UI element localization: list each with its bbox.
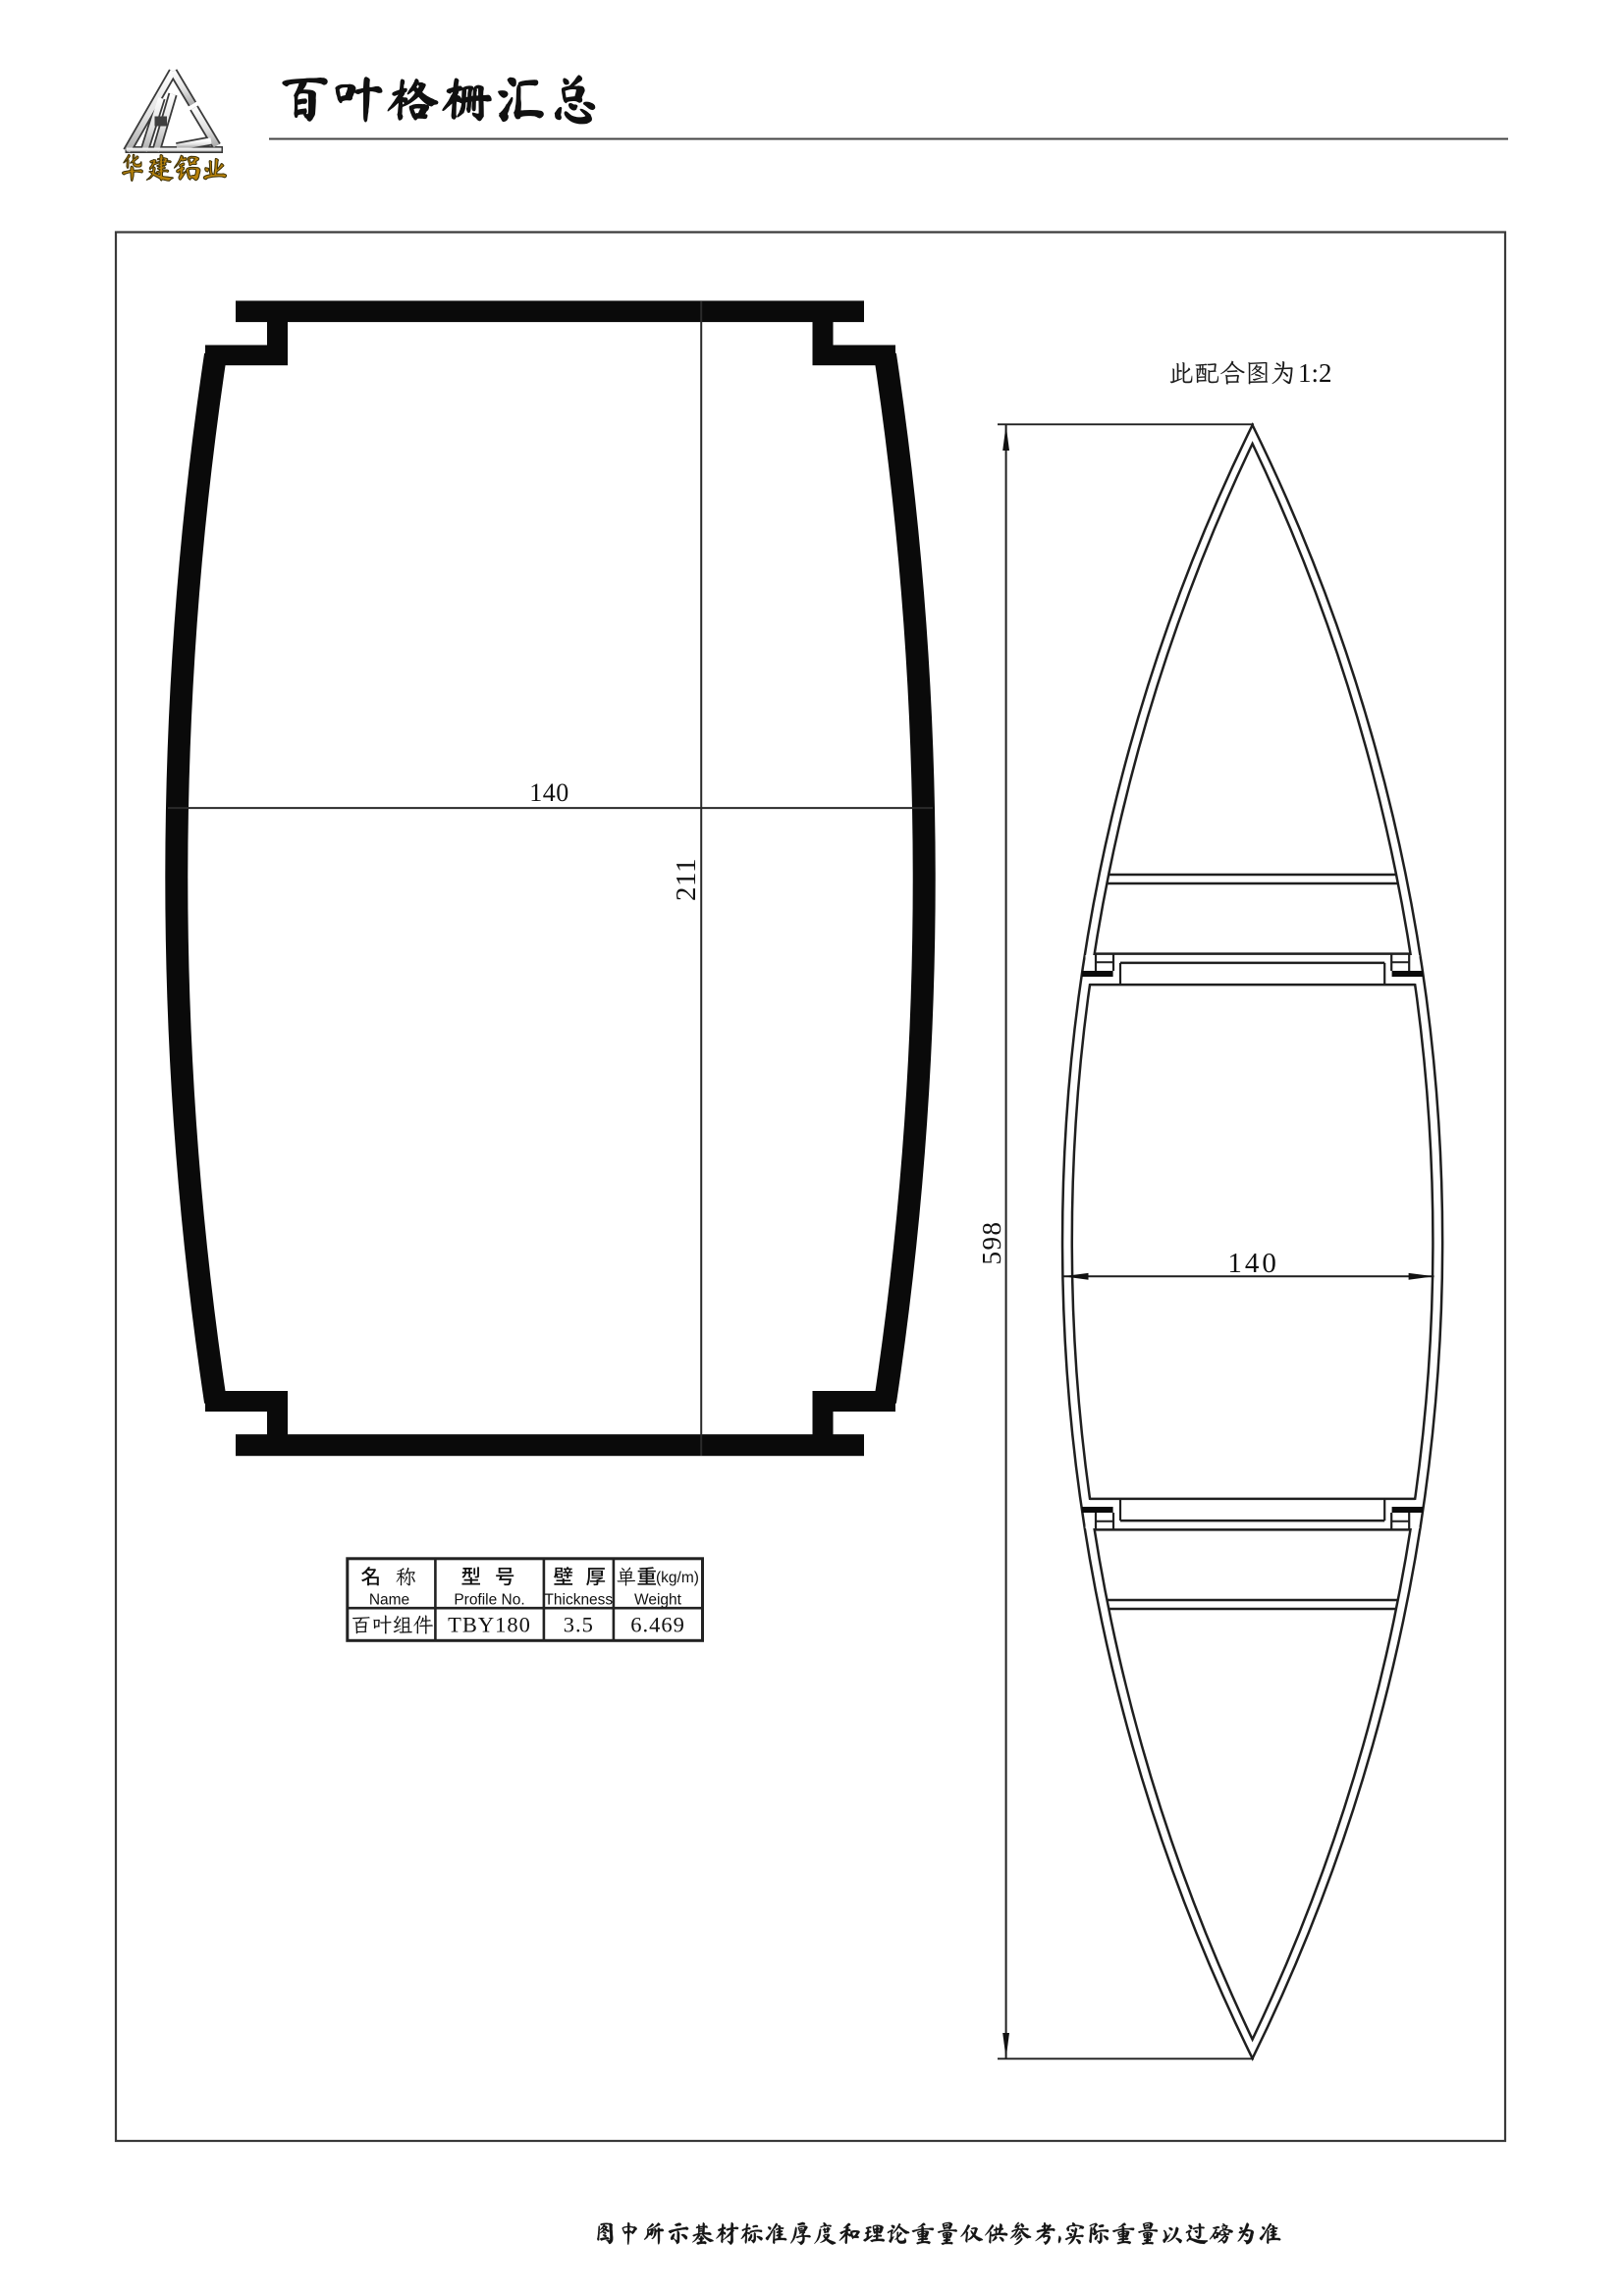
svg-text:140: 140 xyxy=(1227,1248,1279,1279)
svg-text:211: 211 xyxy=(671,858,702,901)
svg-text:TBY180: TBY180 xyxy=(448,1613,531,1637)
svg-text:598: 598 xyxy=(977,1221,1006,1265)
svg-text:6.469: 6.469 xyxy=(630,1613,685,1637)
svg-text:Name: Name xyxy=(369,1592,409,1609)
svg-text:Weight: Weight xyxy=(634,1592,682,1609)
svg-text:Profile No.: Profile No. xyxy=(454,1592,524,1609)
svg-text:140: 140 xyxy=(529,778,569,807)
svg-text:Thickness: Thickness xyxy=(544,1592,613,1609)
svg-text:1:2: 1:2 xyxy=(1298,358,1332,388)
svg-text:3.5: 3.5 xyxy=(564,1613,594,1637)
svg-text:(kg/m): (kg/m) xyxy=(656,1570,699,1586)
